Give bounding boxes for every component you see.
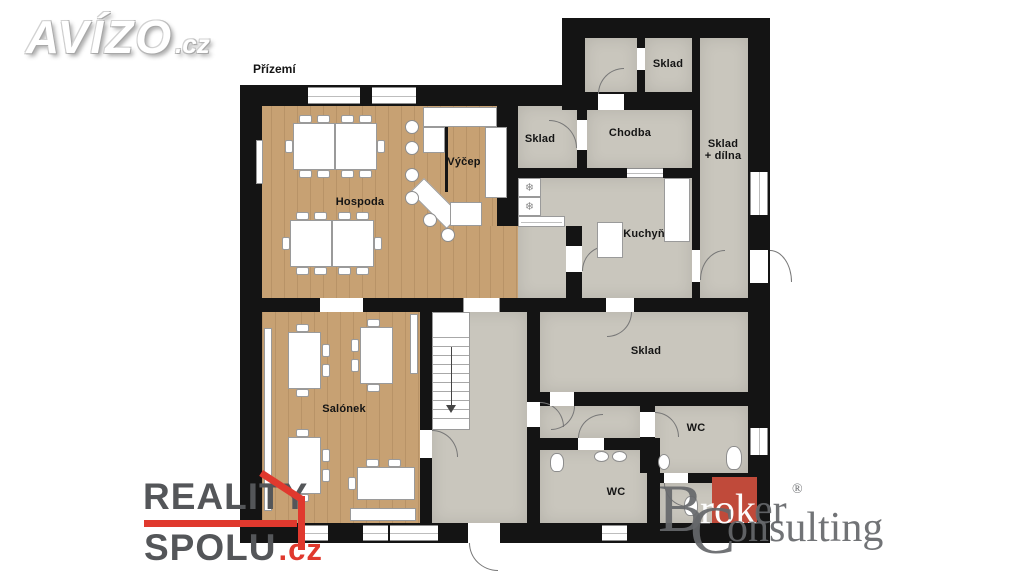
sink xyxy=(612,451,627,462)
avizo-tld: .cz xyxy=(175,29,210,60)
chair xyxy=(356,267,369,275)
chair xyxy=(388,459,401,467)
freezer: ❄ xyxy=(518,178,541,197)
room-label: Kuchyň xyxy=(623,228,665,240)
floor-chodba xyxy=(587,110,692,168)
spolu-word: SPOLU xyxy=(144,529,276,566)
door-opening xyxy=(606,298,634,312)
chair xyxy=(338,212,351,220)
wall-segment xyxy=(540,392,770,406)
room-label: Sklad xyxy=(653,58,683,70)
chair xyxy=(322,469,330,482)
chair xyxy=(296,212,309,220)
room-label: Salónek xyxy=(322,403,366,415)
bar-stool xyxy=(405,168,419,182)
room-label: Sklad xyxy=(631,345,661,357)
chair xyxy=(341,170,354,178)
wall-segment xyxy=(562,18,770,38)
bench xyxy=(350,508,416,521)
door-opening xyxy=(320,298,363,312)
bench xyxy=(410,314,418,374)
kitchen-cabinet xyxy=(597,222,623,258)
chair xyxy=(322,344,330,357)
chair xyxy=(359,115,372,123)
room-label: Hospoda xyxy=(336,196,384,208)
room-label: Sklad xyxy=(525,133,555,145)
stair-direction-line xyxy=(451,347,452,405)
door-opening xyxy=(664,473,688,483)
toilet xyxy=(550,453,564,472)
avizo-wordmark: AVÍZO xyxy=(26,10,173,64)
chair xyxy=(314,212,327,220)
chair xyxy=(367,319,380,327)
dining-table xyxy=(357,467,415,500)
bar-counter xyxy=(485,127,507,198)
window xyxy=(372,87,416,104)
room-label: Výčep xyxy=(447,156,480,168)
door-opening xyxy=(577,120,587,150)
window xyxy=(390,525,438,541)
door-opening xyxy=(527,402,540,427)
reality-divider xyxy=(144,520,297,527)
chair xyxy=(299,170,312,178)
chair xyxy=(366,459,379,467)
chair xyxy=(374,237,382,250)
room-label: WC xyxy=(607,486,626,498)
bar-counter xyxy=(423,127,445,153)
floor-title: Přízemí xyxy=(253,62,296,76)
kitchen-counter xyxy=(518,216,565,227)
bar-counter xyxy=(423,107,497,127)
door-opening xyxy=(578,438,604,450)
bar-counter xyxy=(450,202,482,226)
door-opening xyxy=(566,246,582,272)
avizo-logo: AVÍZO .cz xyxy=(26,10,210,64)
door-opening xyxy=(692,250,700,282)
chair xyxy=(377,140,385,153)
chair xyxy=(296,267,309,275)
door-opening xyxy=(550,392,574,406)
freezer: ❄ xyxy=(518,197,541,216)
registered-mark-icon: ® xyxy=(792,483,803,497)
chair xyxy=(322,449,330,462)
snowflake-icon: ❄ xyxy=(525,200,534,213)
sink xyxy=(594,451,609,462)
door-opening xyxy=(468,523,500,543)
window xyxy=(750,172,768,215)
door-opening xyxy=(598,94,624,110)
stairs xyxy=(432,312,470,430)
dining-table xyxy=(290,220,332,267)
dining-table xyxy=(360,327,393,384)
chair xyxy=(317,170,330,178)
window xyxy=(308,87,360,104)
bar-stool xyxy=(405,191,419,205)
chair xyxy=(351,359,359,372)
chair xyxy=(348,477,356,490)
chair xyxy=(296,324,309,332)
chair xyxy=(322,364,330,377)
wall-segment xyxy=(518,168,700,178)
room-label: Sklad + dílna xyxy=(705,138,742,162)
window xyxy=(602,525,627,541)
chair xyxy=(282,237,290,250)
bar-stool xyxy=(405,120,419,134)
reality-spolu-logo: REALITY SPOLU .cz xyxy=(143,478,308,515)
wall-segment xyxy=(527,312,540,543)
chair xyxy=(338,267,351,275)
stair-down-arrow-icon xyxy=(446,405,456,413)
chair xyxy=(296,429,309,437)
room-label: Chodba xyxy=(609,127,651,139)
kitchen-cabinet xyxy=(664,178,690,242)
dining-table xyxy=(335,123,377,170)
wall-segment xyxy=(420,312,432,523)
door-opening xyxy=(640,412,655,437)
dining-table xyxy=(288,332,321,389)
chair xyxy=(299,115,312,123)
chair xyxy=(317,115,330,123)
chair xyxy=(351,339,359,352)
bar-stool xyxy=(405,141,419,155)
radiator xyxy=(256,140,263,184)
snowflake-icon: ❄ xyxy=(525,181,534,194)
room-label: WC xyxy=(687,422,706,434)
stair-landing-opening xyxy=(463,298,500,312)
chair xyxy=(296,389,309,397)
chair xyxy=(367,384,380,392)
window xyxy=(363,525,388,541)
chair xyxy=(341,115,354,123)
toilet xyxy=(684,496,698,516)
reality-tld: .cz xyxy=(278,534,322,565)
window xyxy=(637,48,645,70)
floor-plan-image: ❄ ❄ Přízemí HospodaVýčepSkladChodbaSklad… xyxy=(0,0,1024,576)
pass-through-window xyxy=(627,168,663,178)
window xyxy=(750,428,768,455)
chair xyxy=(359,170,372,178)
chair xyxy=(285,140,293,153)
door-opening xyxy=(750,250,768,283)
door-opening xyxy=(420,430,432,458)
dining-table xyxy=(332,220,374,267)
bar-stool xyxy=(441,228,455,242)
bar-stool xyxy=(423,213,437,227)
dining-table xyxy=(293,123,335,170)
door-swing-arc xyxy=(469,543,498,571)
chair xyxy=(314,267,327,275)
door-swing-arc xyxy=(770,250,792,282)
chair xyxy=(356,212,369,220)
sink xyxy=(658,454,670,470)
toilet xyxy=(726,446,742,470)
